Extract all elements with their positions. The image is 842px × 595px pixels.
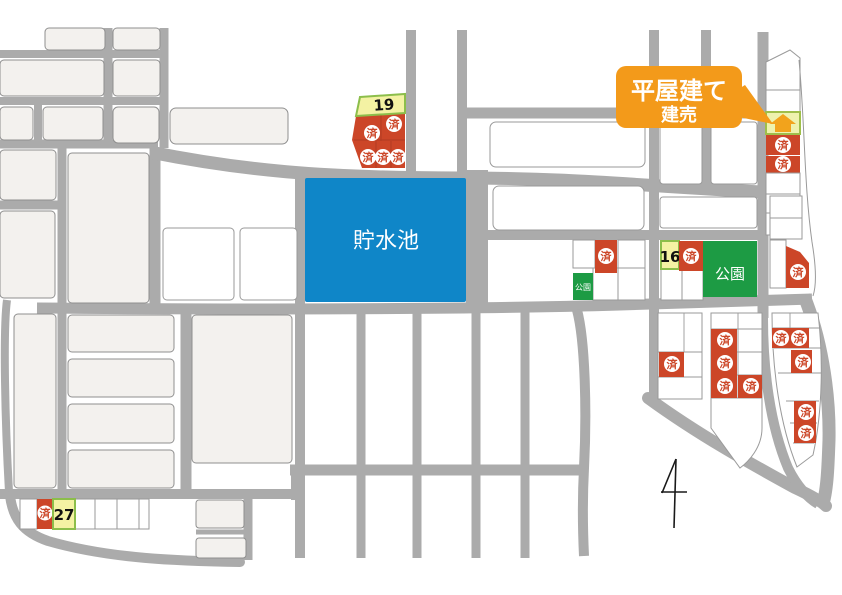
sold-badge: 済 xyxy=(717,378,733,394)
svg-text:済: 済 xyxy=(720,379,732,393)
svg-text:済: 済 xyxy=(720,333,732,347)
svg-text:済: 済 xyxy=(378,150,390,164)
sold-badge: 済 xyxy=(775,156,791,172)
sold-badge: 済 xyxy=(717,332,733,348)
sold-badge: 済 xyxy=(743,378,759,394)
svg-text:済: 済 xyxy=(801,405,813,419)
sold-badge: 済 xyxy=(38,506,53,521)
svg-text:済: 済 xyxy=(793,265,805,279)
sold-badge: 済 xyxy=(386,116,402,132)
small-park-label: 公園 xyxy=(575,283,591,292)
sold-badge: 済 xyxy=(375,149,391,165)
svg-text:済: 済 xyxy=(601,249,613,263)
sold-badge: 済 xyxy=(360,149,376,165)
svg-text:済: 済 xyxy=(667,357,679,371)
sold-badge: 済 xyxy=(773,330,789,346)
sold-badge: 済 xyxy=(790,264,806,280)
svg-text:済: 済 xyxy=(389,117,401,131)
sold-badge: 済 xyxy=(798,425,814,441)
callout-line2: 建売 xyxy=(661,104,697,126)
sold-badge: 済 xyxy=(775,137,791,153)
svg-text:済: 済 xyxy=(363,150,375,164)
map-canvas: 19 済 済 済 済 済 貯水池 公園 済 16 済 公園 xyxy=(0,0,842,595)
svg-text:済: 済 xyxy=(778,138,790,152)
site-map: 19 済 済 済 済 済 貯水池 公園 済 16 済 公園 xyxy=(0,0,842,595)
svg-text:済: 済 xyxy=(778,157,790,171)
sold-badge: 済 xyxy=(795,354,811,370)
lot-27-number: 27 xyxy=(54,506,75,524)
svg-text:済: 済 xyxy=(801,426,813,440)
sold-badge: 済 xyxy=(791,330,807,346)
southeast-block-left: 済 xyxy=(658,313,702,399)
callout-line1: 平屋建て xyxy=(631,77,727,105)
sold-badge: 済 xyxy=(364,125,380,141)
svg-text:済: 済 xyxy=(40,506,52,520)
sold-badge: 済 xyxy=(798,404,814,420)
sold-badge: 済 xyxy=(683,248,699,264)
lot-16-number: 16 xyxy=(660,248,681,266)
lot-block-16-park: 16 済 公園 xyxy=(660,241,757,300)
svg-text:済: 済 xyxy=(367,126,379,140)
lot-cluster-19: 19 済 済 済 済 済 xyxy=(352,94,406,168)
sold-badge: 済 xyxy=(598,248,614,264)
reservoir-label: 貯水池 xyxy=(353,229,419,254)
svg-text:済: 済 xyxy=(746,379,758,393)
svg-text:済: 済 xyxy=(794,331,806,345)
sold-badge: 済 xyxy=(390,149,406,165)
svg-text:済: 済 xyxy=(393,150,405,164)
svg-text:済: 済 xyxy=(776,331,788,345)
svg-text:済: 済 xyxy=(686,249,698,263)
sold-badge: 済 xyxy=(717,355,733,371)
svg-text:済: 済 xyxy=(798,355,810,369)
sold-badge: 済 xyxy=(664,356,680,372)
lot-row-27: 済 27 xyxy=(20,499,149,529)
reservoir: 貯水池 xyxy=(305,178,466,302)
park-label: 公園 xyxy=(715,265,745,283)
svg-text:済: 済 xyxy=(720,356,732,370)
lot-19-number: 19 xyxy=(373,95,395,114)
